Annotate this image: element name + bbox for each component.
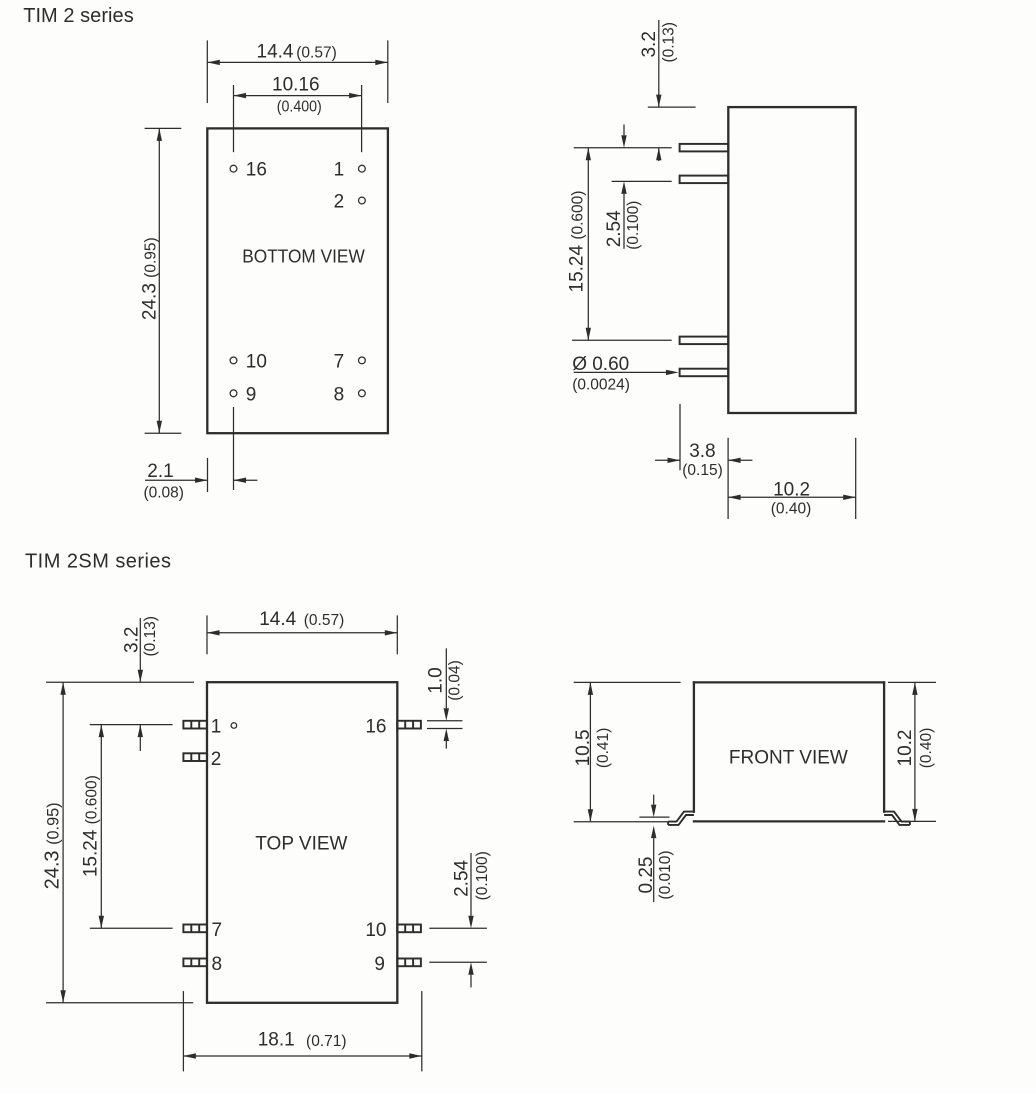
svg-text:BOTTOM VIEW: BOTTOM VIEW — [242, 245, 365, 266]
svg-text:2: 2 — [334, 192, 345, 213]
svg-text:0.25: 0.25 — [636, 857, 657, 894]
svg-text:(0.13): (0.13) — [660, 22, 677, 63]
svg-text:TOP VIEW: TOP VIEW — [255, 833, 347, 854]
svg-text:(0.57): (0.57) — [296, 45, 337, 62]
svg-text:14.4: 14.4 — [259, 609, 296, 630]
svg-text:(0.010): (0.010) — [657, 850, 674, 899]
svg-text:(0.04): (0.04) — [446, 660, 463, 701]
svg-text:(0.40): (0.40) — [918, 728, 935, 769]
svg-text:9: 9 — [246, 384, 257, 405]
svg-text:16: 16 — [365, 716, 386, 737]
svg-text:10.2: 10.2 — [773, 480, 810, 501]
svg-text:(0.100): (0.100) — [625, 201, 642, 250]
svg-text:9: 9 — [374, 954, 385, 975]
svg-text:FRONT VIEW: FRONT VIEW — [729, 748, 848, 769]
svg-text:2.54: 2.54 — [604, 210, 625, 247]
svg-text:3.2: 3.2 — [639, 31, 660, 57]
svg-text:(0.41): (0.41) — [595, 728, 612, 769]
svg-text:3.8: 3.8 — [689, 441, 715, 462]
svg-text:8: 8 — [334, 384, 345, 405]
svg-text:1: 1 — [334, 160, 345, 181]
svg-text:(0.40): (0.40) — [771, 501, 812, 518]
svg-text:2: 2 — [211, 749, 222, 770]
svg-text:18.1: 18.1 — [258, 1029, 295, 1050]
svg-text:10.2: 10.2 — [895, 730, 916, 767]
svg-text:1.0: 1.0 — [425, 667, 446, 693]
svg-text:15.24 (0.600): 15.24 (0.600) — [81, 775, 102, 877]
svg-text:1: 1 — [211, 716, 222, 737]
svg-text:24.3 (0.95): 24.3 (0.95) — [42, 802, 64, 889]
svg-text:10.16: 10.16 — [272, 74, 320, 95]
svg-text:(0.08): (0.08) — [143, 484, 184, 501]
svg-text:14.4: 14.4 — [257, 41, 294, 62]
svg-text:TIM 2SM series: TIM 2SM series — [25, 550, 171, 572]
svg-text:(0.400): (0.400) — [277, 98, 322, 115]
svg-text:7: 7 — [334, 351, 345, 372]
svg-text:24.3 (0.95): 24.3 (0.95) — [139, 237, 160, 320]
svg-text:7: 7 — [212, 920, 223, 941]
svg-text:15.24 (0.600): 15.24 (0.600) — [567, 191, 588, 293]
svg-text:10: 10 — [246, 351, 267, 372]
svg-text:(0.57): (0.57) — [304, 612, 345, 629]
svg-text:8: 8 — [212, 954, 223, 975]
svg-text:(0.13): (0.13) — [142, 616, 159, 657]
svg-text:TIM 2 series: TIM 2 series — [23, 5, 134, 27]
svg-text:(0.100): (0.100) — [474, 851, 491, 900]
svg-text:(0.71): (0.71) — [306, 1033, 347, 1050]
svg-text:(0.0024): (0.0024) — [572, 377, 630, 394]
svg-text:2.54: 2.54 — [451, 859, 472, 896]
svg-text:2.1: 2.1 — [147, 461, 173, 482]
svg-text:16: 16 — [246, 160, 267, 181]
svg-text:10: 10 — [365, 920, 386, 941]
svg-text:3.2: 3.2 — [121, 627, 142, 653]
svg-text:10.5: 10.5 — [573, 729, 594, 766]
svg-text:(0.15): (0.15) — [682, 462, 723, 479]
